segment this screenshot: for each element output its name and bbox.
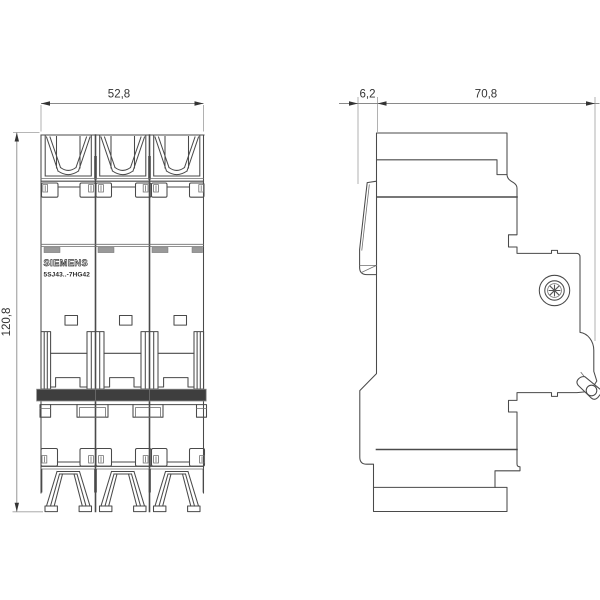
side-top-step-lines (377, 160, 508, 175)
toggle-handles (41, 332, 204, 389)
side-section-lines (377, 197, 518, 450)
top-terminal-screw-boxes (42, 183, 205, 197)
dim-width-label: 52,8 (108, 89, 130, 101)
technical-drawing-canvas: SIEMENS 5SJ43..-7HG42 (0, 0, 600, 600)
lower-tabs (40, 405, 207, 418)
side-profile-outline (360, 133, 597, 512)
front-view: SIEMENS 5SJ43..-7HG42 (37, 135, 207, 512)
toggle-lever (360, 181, 377, 274)
front-body-edges (41, 135, 204, 493)
dimension-drawing-page: SIEMENS 5SJ43..-7HG42 (0, 0, 600, 600)
handle-tie-bar (37, 389, 207, 401)
dimension-depth: 70,8 (378, 89, 600, 342)
dim-depth-label: 70,8 (475, 89, 497, 101)
dim-protrusion-label: 6,2 (360, 89, 376, 101)
bottom-clamp-terminals (42, 470, 203, 512)
dimension-width: 52,8 (41, 89, 204, 132)
dim-height-label: 120,8 (1, 308, 13, 337)
side-view (360, 133, 600, 512)
terminal-screw-icon (539, 275, 569, 305)
bottom-terminal-screw-boxes (41, 449, 205, 470)
dimension-height: 120,8 (1, 133, 43, 512)
top-clamp-terminals (41, 135, 204, 181)
din-rail-latch (577, 372, 600, 399)
indicator-windows (65, 316, 187, 326)
upper-separator (41, 244, 204, 252)
brand-label: SIEMENS (44, 258, 89, 268)
model-label: 5SJ43..-7HG42 (44, 271, 91, 278)
dimension-front-protrusion: 6,2 (339, 89, 378, 185)
